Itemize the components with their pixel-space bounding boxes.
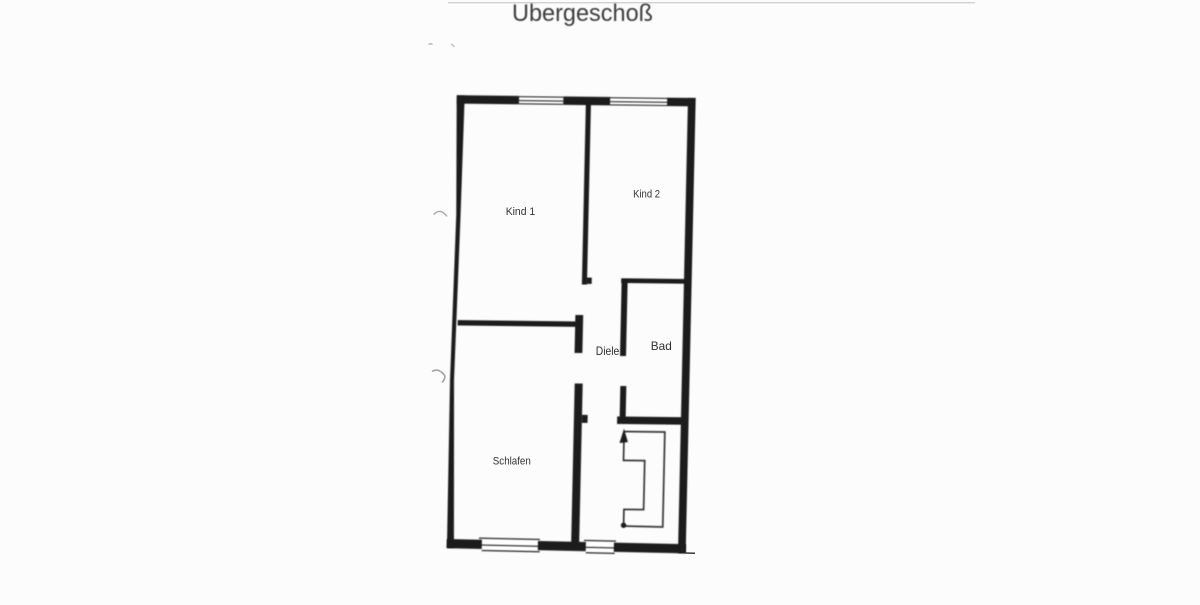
svg-text:Kind 2: Kind 2 [633, 189, 660, 201]
svg-text:Kind 1: Kind 1 [506, 206, 536, 218]
svg-text:Ubergeschoß: Ubergeschoß [512, 0, 653, 27]
svg-text:Bad: Bad [651, 339, 672, 353]
svg-text:Diele: Diele [596, 344, 620, 358]
svg-text:Schlafen: Schlafen [493, 456, 531, 468]
